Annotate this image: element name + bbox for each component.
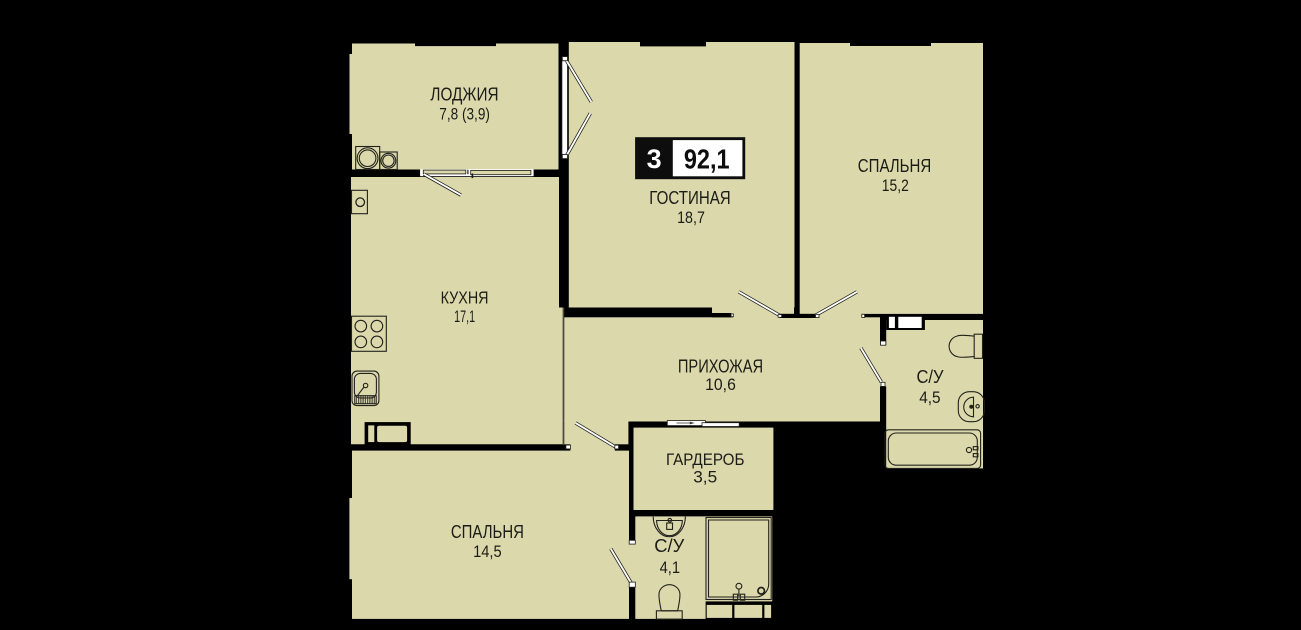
svg-text:СПАЛЬНЯ: СПАЛЬНЯ bbox=[451, 521, 524, 542]
svg-text:ПРИХОЖАЯ: ПРИХОЖАЯ bbox=[678, 355, 763, 376]
svg-text:С/У: С/У bbox=[916, 367, 944, 387]
svg-text:С/У: С/У bbox=[654, 536, 685, 556]
svg-text:3,5: 3,5 bbox=[693, 467, 717, 486]
svg-text:3: 3 bbox=[647, 144, 662, 174]
svg-text:17,1: 17,1 bbox=[454, 307, 475, 326]
svg-text:СПАЛЬНЯ: СПАЛЬНЯ bbox=[858, 156, 931, 176]
svg-text:18,7: 18,7 bbox=[677, 208, 705, 227]
svg-text:КУХНЯ: КУХНЯ bbox=[441, 288, 489, 308]
svg-text:15,2: 15,2 bbox=[882, 176, 909, 195]
svg-text:4,1: 4,1 bbox=[660, 558, 680, 577]
svg-text:4,5: 4,5 bbox=[919, 388, 940, 407]
svg-text:92,1: 92,1 bbox=[684, 143, 730, 174]
svg-text:ЛОДЖИЯ: ЛОДЖИЯ bbox=[430, 85, 498, 105]
svg-text:10,6: 10,6 bbox=[705, 375, 736, 394]
svg-text:ГОСТИНАЯ: ГОСТИНАЯ bbox=[649, 187, 730, 208]
svg-text:7,8 (3,9): 7,8 (3,9) bbox=[439, 104, 490, 123]
svg-text:14,5: 14,5 bbox=[473, 542, 502, 561]
